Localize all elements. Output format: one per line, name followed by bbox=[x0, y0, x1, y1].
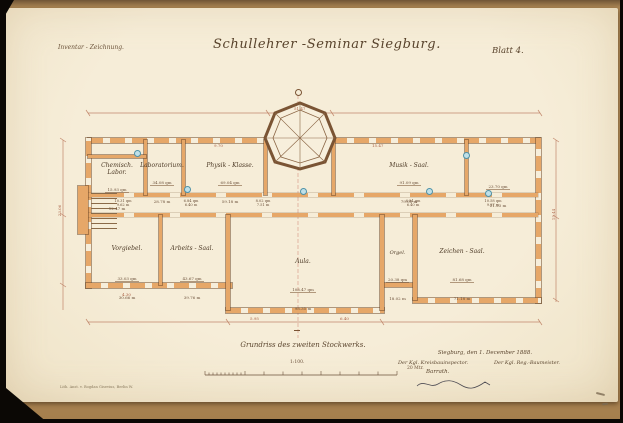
wall-segment bbox=[88, 138, 268, 143]
corridor-wall bbox=[88, 213, 538, 217]
dimension-value: 6.40 bbox=[340, 316, 349, 321]
stove-icon bbox=[134, 150, 141, 157]
room-name: Musik - Saal. bbox=[372, 162, 446, 169]
corridor-annotation: 10.58 qm 9.87 m bbox=[478, 199, 508, 207]
room-area: 33.03 qm bbox=[115, 276, 138, 282]
corridor-annotation: 6.84 qm 6.40 m bbox=[176, 199, 206, 207]
room-size: 71.18 m bbox=[454, 296, 471, 301]
printer-credit: Lith. Anst. v. Bogdan Gisevius, Berlin W… bbox=[60, 385, 133, 389]
plan-caption: Grundriss des zweiten Stockwerks. bbox=[215, 341, 391, 349]
wall-segment bbox=[159, 215, 162, 285]
room-name: Vorgiebel. bbox=[100, 245, 154, 252]
dimension-value: 51.47 bbox=[294, 106, 305, 111]
room-area: 15.93 qm bbox=[105, 187, 128, 193]
room-area: 34.08 qm bbox=[150, 180, 173, 186]
room-name: Laboratorium. bbox=[136, 162, 188, 169]
room-size: 39.76 m bbox=[184, 295, 201, 300]
corridor-annotation: 6.84 qm 6.40 m bbox=[398, 199, 428, 207]
room-name: Physik - Klasse. bbox=[198, 162, 262, 169]
signature-titles: Der Kgl. Kreisbauinspector. Der Kgl. Reg… bbox=[398, 360, 560, 366]
room-area: 23.70 qm bbox=[486, 184, 509, 190]
scale-ratio: 1:100. bbox=[290, 360, 304, 365]
dimension-value: 9.70 bbox=[214, 143, 223, 148]
room-label: Arbeits - Saal. 43.67 qm 39.76 m bbox=[163, 245, 221, 303]
room-size: 98.35 m bbox=[295, 306, 312, 311]
scale-unit: 20 Mtr. bbox=[407, 366, 424, 371]
room-label: Zeichen - Saal. 81.68 qm 71.18 m bbox=[428, 248, 496, 304]
room-size: 59.18 m bbox=[222, 199, 239, 204]
handwritten-signature bbox=[415, 377, 493, 391]
wall-segment bbox=[226, 215, 230, 310]
wall-segment bbox=[465, 140, 468, 195]
room-area: 69.04 qm bbox=[218, 180, 241, 186]
wall-segment bbox=[332, 138, 540, 143]
room-label: Orgel. 20.38 qm 18.02 m bbox=[381, 250, 414, 304]
right-official-title: Der Kgl. Reg.-Baumeister. bbox=[494, 360, 560, 366]
room-area: 43.67 qm bbox=[180, 276, 203, 282]
dimension-value: 4.30 bbox=[122, 292, 131, 297]
place-date: Siegburg, den 1. December 1888. bbox=[420, 350, 550, 356]
room-name: Orgel. bbox=[381, 250, 414, 257]
room-name: Aula. bbox=[276, 258, 330, 265]
room-size: 18.02 m bbox=[389, 296, 406, 301]
stove-icon bbox=[463, 152, 470, 159]
room-name: Arbeits - Saal. bbox=[163, 245, 221, 252]
room-size: 28.78 m bbox=[154, 199, 171, 204]
north-marker-icon bbox=[295, 89, 302, 96]
corridor-annotation: 8.02 qm 7.51 m bbox=[248, 199, 278, 207]
room-name: Zeichen - Saal. bbox=[428, 248, 496, 255]
photo-edge-bottom bbox=[0, 419, 623, 423]
wall-segment bbox=[536, 138, 541, 303]
room-area: 108.47 qm bbox=[290, 287, 316, 293]
photo-edge-left bbox=[0, 0, 6, 423]
room-label: Aula. 108.47 qm 98.35 m bbox=[276, 258, 330, 314]
dimension-value: 23.06 bbox=[57, 205, 62, 216]
signature-name: Barrath. bbox=[426, 369, 449, 375]
scale-bar bbox=[203, 368, 403, 378]
corridor-annotation: 10.31 qm 9.62 m bbox=[108, 199, 138, 207]
room-area: 20.38 qm bbox=[386, 277, 409, 283]
dimension-value: 15.47 bbox=[372, 143, 383, 148]
dimension-value: 15.44 bbox=[551, 209, 556, 220]
axis-marker-icon bbox=[294, 330, 300, 331]
room-area: 81.68 qm bbox=[450, 277, 473, 283]
scanned-drawing-sheet: Inventar - Zeichnung. Schullehrer -Semin… bbox=[0, 0, 623, 423]
stove-icon bbox=[300, 188, 307, 195]
stair-bay-wall bbox=[78, 186, 88, 234]
left-official-title: Der Kgl. Kreisbauinspector. bbox=[398, 360, 468, 366]
dimension-value: 5.95 bbox=[250, 316, 259, 321]
room-area: 91.09 qm bbox=[397, 180, 420, 186]
